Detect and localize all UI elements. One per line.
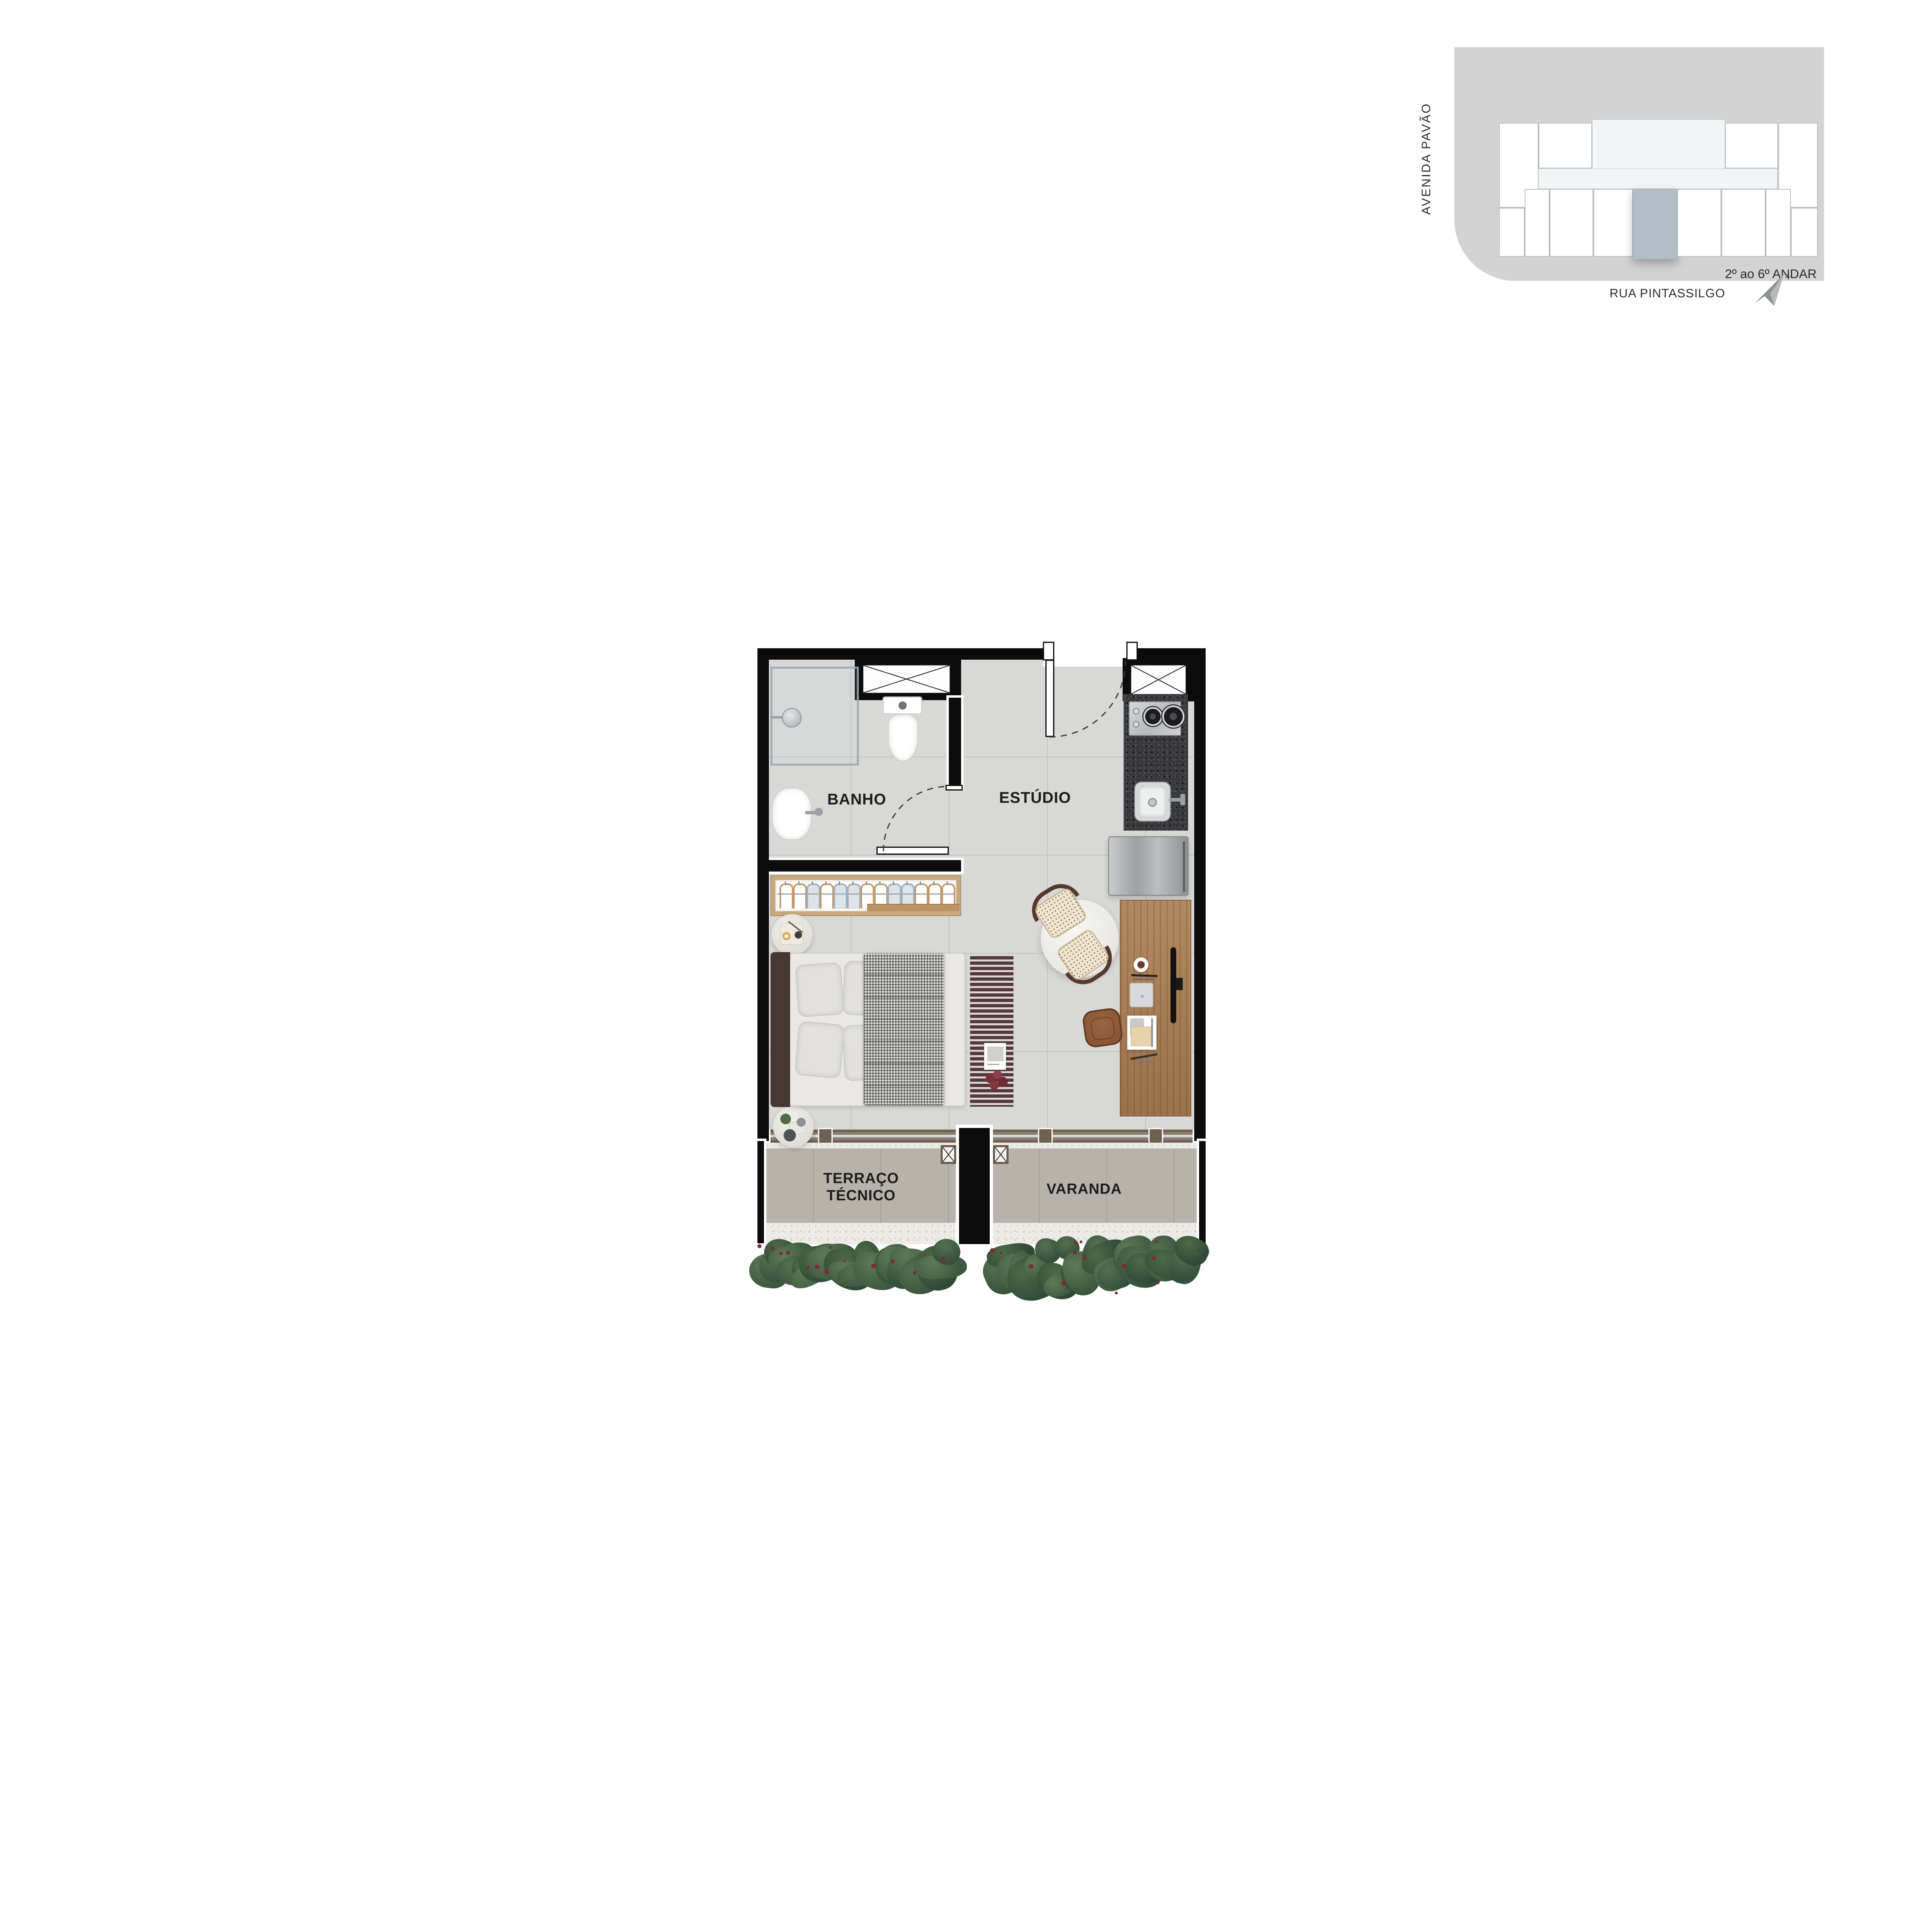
door-mullion (818, 1128, 833, 1144)
street-label-avenida: AVENIDA PAVÃO (1420, 73, 1433, 245)
outer-wall-left (757, 648, 769, 1141)
hedge-berry (1122, 1264, 1126, 1268)
hedge-berry (1082, 1256, 1087, 1260)
hedge-berry (806, 1266, 810, 1269)
notebook (1131, 1027, 1151, 1046)
keyplan-unit (1677, 189, 1721, 257)
room-label-bathroom: BANHO (816, 791, 898, 809)
keyplan-unit (1539, 123, 1592, 168)
pillow (794, 1021, 845, 1078)
kitchen-sink-icon (1135, 782, 1170, 821)
sink-drain (1148, 798, 1157, 807)
hanger-icon (780, 883, 793, 909)
hedge-berry (1197, 1249, 1200, 1252)
candle (782, 932, 791, 940)
hedge-berry (941, 1257, 946, 1261)
keyplan-unit (1525, 189, 1550, 257)
toilet-flush-button (899, 701, 907, 710)
vent-shaft-icon (862, 664, 951, 694)
keyplan-unit (1550, 189, 1593, 257)
bathroom-door-leaf (876, 847, 949, 855)
entry-door-leaf (1045, 660, 1054, 737)
hedge-berry (779, 1252, 782, 1255)
nightstand-bottom (773, 1106, 814, 1147)
tv-icon (1170, 947, 1176, 1023)
hedge-berry (1073, 1251, 1077, 1255)
decor-dish (795, 931, 802, 939)
bed-blanket (864, 954, 944, 1105)
entry-door-jamb (1043, 642, 1054, 660)
hedge-berry (1029, 1264, 1033, 1269)
magazine (984, 1043, 1006, 1070)
hedge-berry (757, 1244, 762, 1248)
north-arrow-icon: N (1751, 271, 1792, 312)
sink-faucet-handle (815, 808, 823, 816)
hedge-berry (815, 1265, 820, 1269)
keyplan-highlighted-unit (1633, 189, 1677, 259)
floor-plan: BANHO ESTÚDIO TERRAÇO TÉCNICO VARANDA (757, 647, 1206, 1310)
hedge-berry (923, 1254, 926, 1256)
door-jamb (946, 785, 963, 791)
hedge-berry (1155, 1240, 1158, 1243)
nightstand-top (772, 914, 813, 955)
keyplan-unit (1593, 189, 1633, 257)
closet (771, 875, 961, 916)
outer-wall-right (1194, 648, 1206, 1141)
kitchen-faucet-handle (1180, 794, 1185, 805)
vent-shaft-icon (1130, 664, 1187, 695)
hanger-icon (833, 883, 847, 909)
hedge-berry (786, 1251, 790, 1255)
room-label-balcony: VARANDA (1033, 1180, 1135, 1197)
hedge-berry (871, 1264, 876, 1268)
door-mullion (1038, 1128, 1053, 1144)
page: { "keyplan": { "street_left_label": "AVE… (0, 0, 1932, 1932)
hedge-right (988, 1235, 1209, 1301)
pen (1136, 1061, 1156, 1063)
desk (1120, 900, 1191, 1117)
terrace-side-wall-right (1199, 1141, 1206, 1243)
shower-head-icon (782, 708, 802, 728)
hedge-berry (1061, 1281, 1066, 1285)
keyplan-core-band (1538, 168, 1777, 189)
hedge-berry (1080, 1240, 1083, 1243)
hedge-berry (1157, 1281, 1159, 1284)
hanger-icon (820, 883, 834, 909)
hedge-berry (1074, 1241, 1078, 1245)
column-shaft-icon (993, 1145, 1009, 1164)
keyplan-unit (1766, 189, 1791, 257)
hedge-berry (913, 1271, 917, 1275)
hedge-berry (891, 1259, 895, 1263)
hanger-icon (793, 883, 807, 909)
door-mullion (1148, 1128, 1163, 1144)
keyplan-site: 2º ao 6º ANDAR (1454, 47, 1824, 281)
flower-decor (984, 1069, 1010, 1094)
column-shaft-icon (941, 1145, 956, 1164)
bathroom-bottom-wall (757, 860, 961, 872)
entry-door-jamb (1126, 642, 1138, 660)
hanger-icon (806, 883, 820, 909)
desk-chair (1081, 1007, 1124, 1049)
hedge-left (753, 1235, 961, 1301)
tv-mount (1176, 978, 1183, 990)
structural-column (959, 1128, 990, 1244)
decor-cup (797, 1118, 806, 1127)
outer-wall-top-left (757, 648, 1045, 660)
hedge-berry (1115, 1292, 1118, 1294)
bathroom-partition-wall (949, 698, 961, 786)
cooktop-icon (1129, 701, 1181, 736)
toilet-icon (887, 714, 919, 762)
pillow (795, 962, 845, 1018)
room-label-technical-terrace: TERRAÇO TÉCNICO (809, 1170, 913, 1204)
keyplan-unit (1499, 208, 1525, 257)
sill-strip-right (990, 1143, 1199, 1148)
street-label-rua: RUA PINTASSILGO (1606, 287, 1729, 301)
keyplan-unit (1791, 208, 1818, 257)
keyplan-unit (1725, 123, 1778, 168)
terrace-side-wall-left (757, 1141, 764, 1243)
room-label-studio: ESTÚDIO (988, 789, 1082, 807)
pen (1133, 979, 1154, 980)
coffee-cup (1134, 957, 1148, 972)
decor-dish (784, 1129, 796, 1141)
north-letter: N (1784, 273, 1791, 281)
keyplan-unit (1721, 189, 1766, 257)
bed-headboard (771, 952, 790, 1107)
desk-magazine (1127, 1015, 1157, 1050)
hanger-icon (847, 883, 861, 909)
laptop (1130, 983, 1153, 1007)
fridge-icon (1108, 836, 1188, 896)
closet-step (867, 904, 959, 911)
